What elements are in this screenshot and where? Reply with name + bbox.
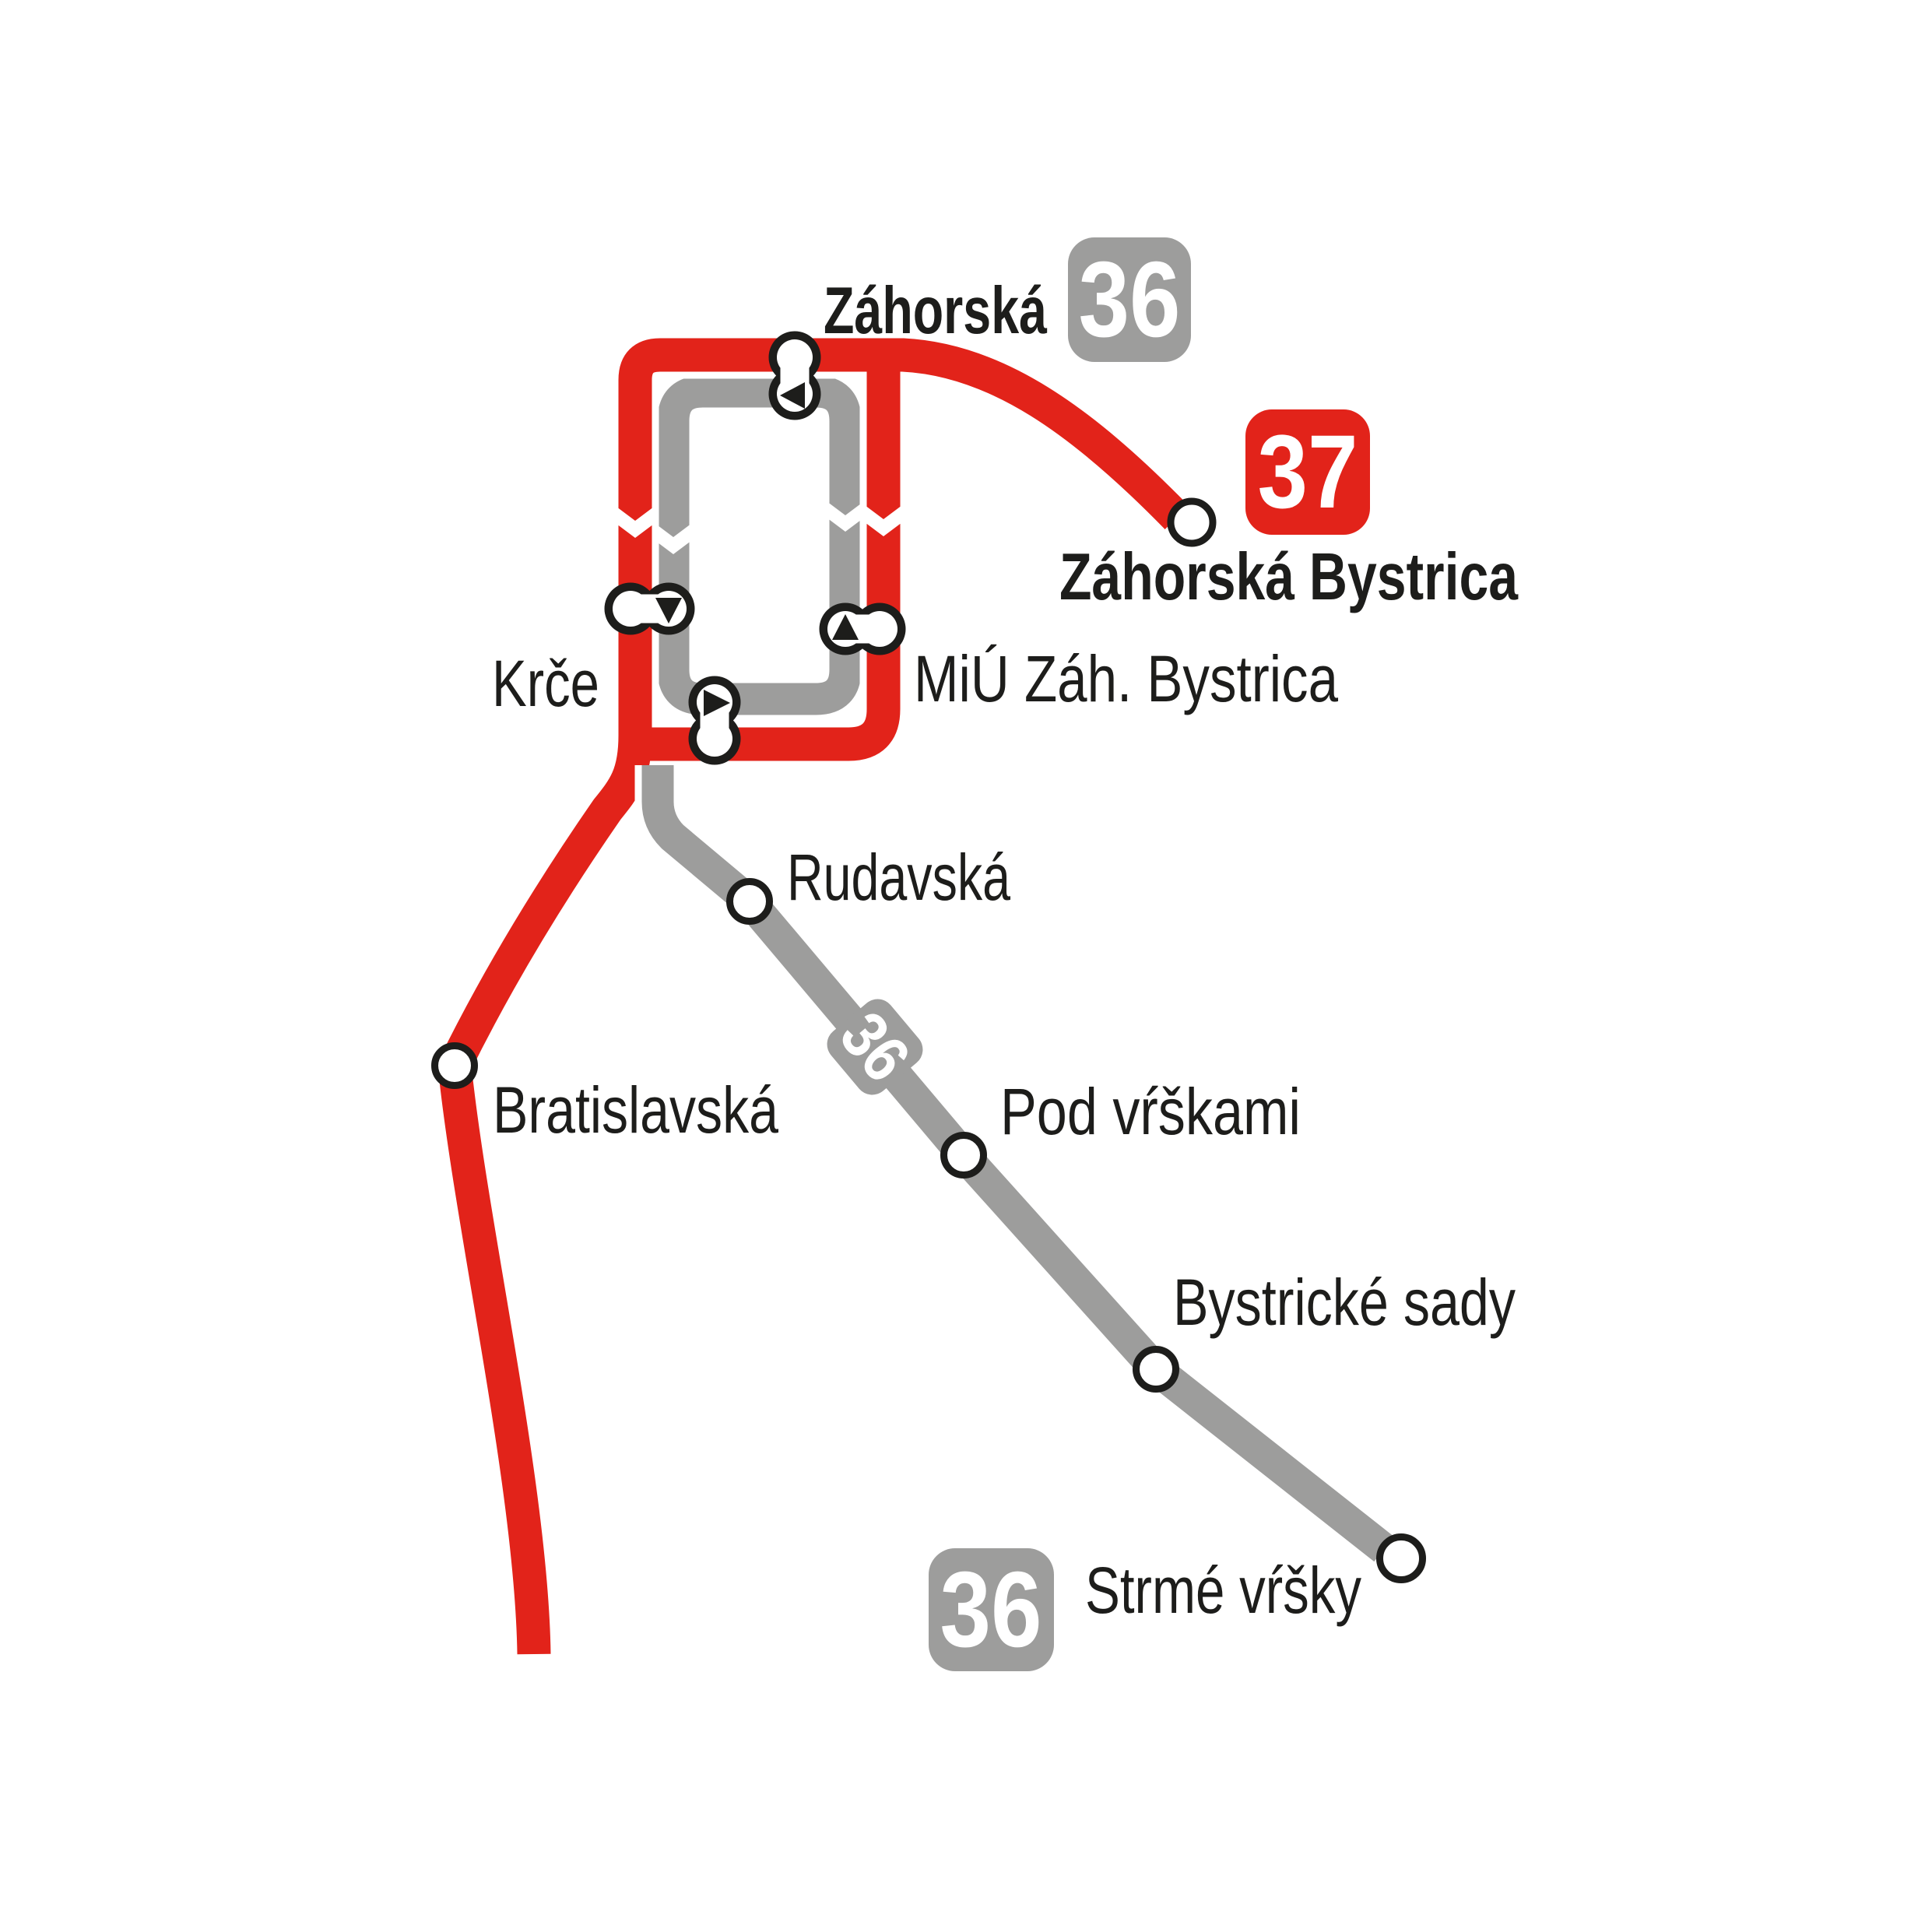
svg-text:37: 37 <box>1258 414 1358 530</box>
svg-text:Strmé vŕšky: Strmé vŕšky <box>1085 1554 1361 1627</box>
svg-text:Záhorská: Záhorská <box>824 274 1048 348</box>
svg-text:Záhorská Bystrica: Záhorská Bystrica <box>1059 540 1519 614</box>
svg-text:Bratislavská: Bratislavská <box>493 1073 778 1147</box>
svg-text:Rudavská: Rudavská <box>787 841 1010 914</box>
svg-text:36: 36 <box>1079 240 1181 360</box>
svg-text:MiÚ Záh. Bystrica: MiÚ Záh. Bystrica <box>914 642 1338 715</box>
svg-text:Bystrické sady: Bystrické sady <box>1173 1266 1516 1339</box>
svg-text:Pod vŕškami: Pod vŕškami <box>1000 1075 1301 1148</box>
svg-text:Krče: Krče <box>492 647 599 720</box>
svg-text:36: 36 <box>940 1550 1042 1670</box>
